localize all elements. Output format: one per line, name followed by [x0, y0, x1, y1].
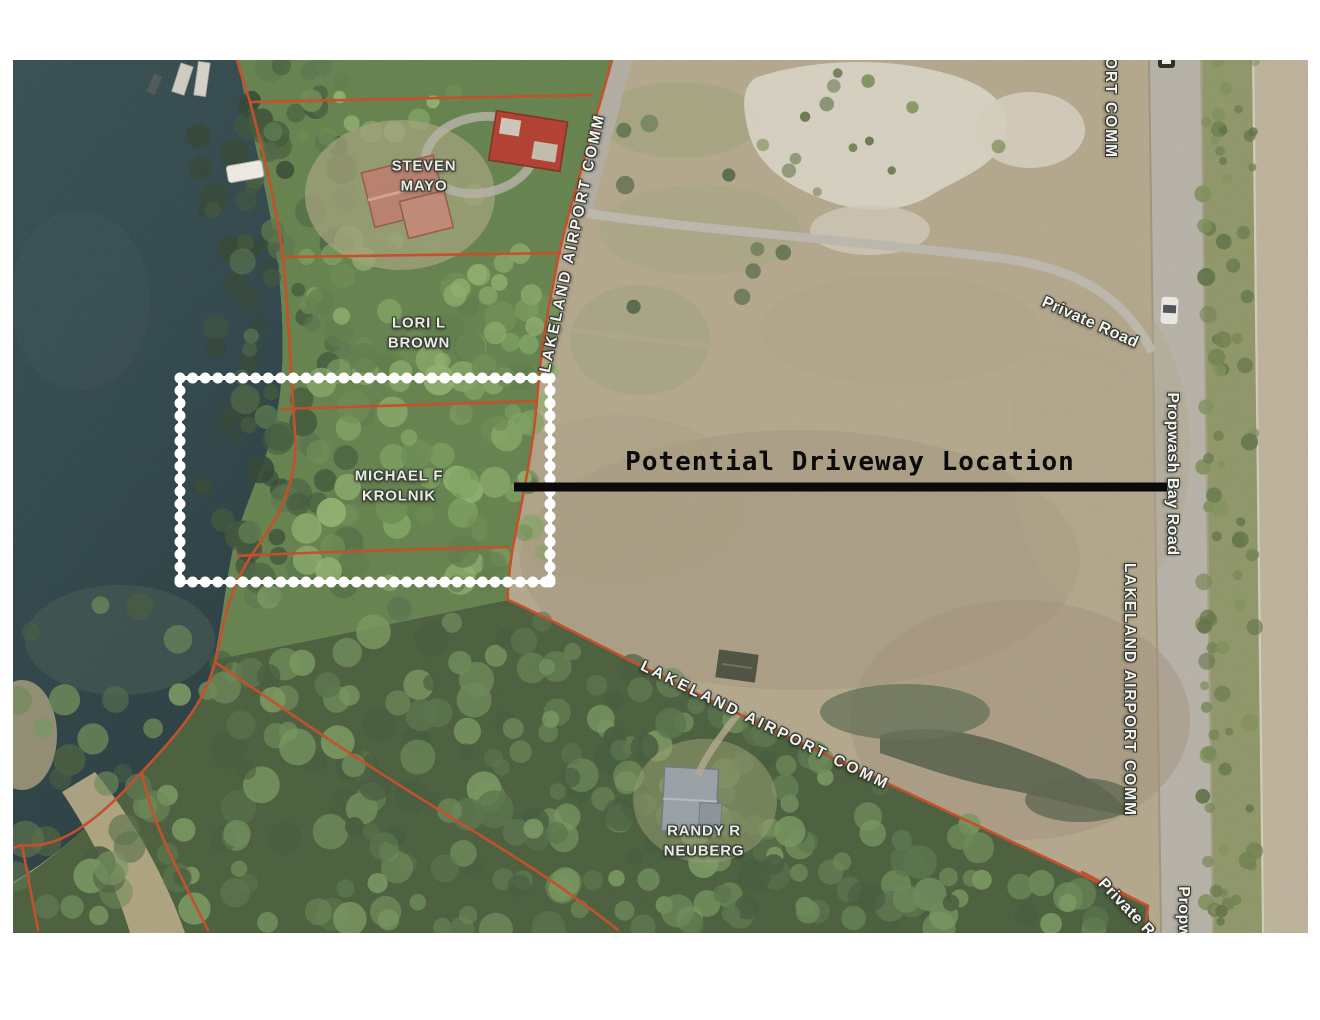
driveway-annotation-label: Potential Driveway Location	[625, 447, 1075, 477]
page: STEVEN MAYO LORI L BROWN MICHAEL F KROLN…	[0, 0, 1320, 1020]
satellite-terrain	[13, 60, 1308, 933]
texture-overlay	[13, 60, 1308, 933]
clipped-road-label-fragment	[1158, 60, 1175, 68]
aerial-map[interactable]: STEVEN MAYO LORI L BROWN MICHAEL F KROLN…	[13, 60, 1308, 933]
